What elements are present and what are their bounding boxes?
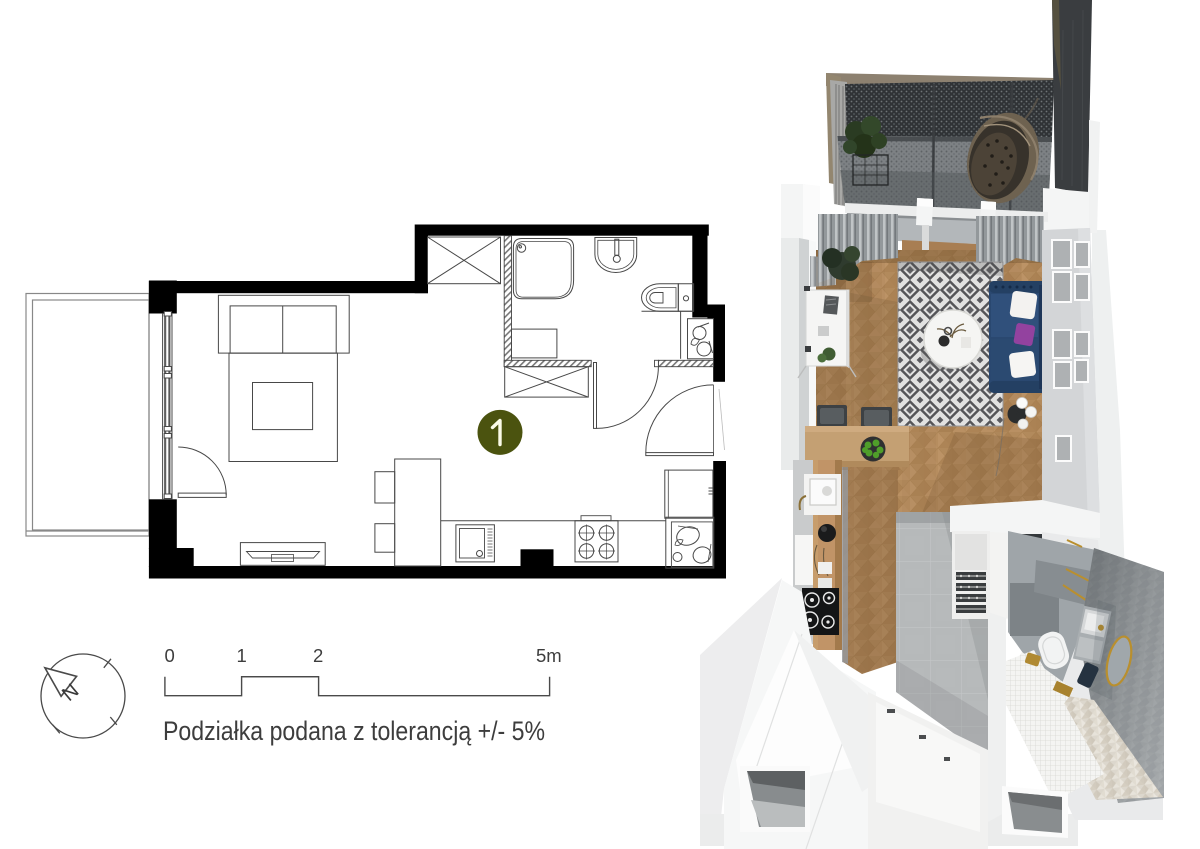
svg-text:0: 0 [165,645,175,666]
svg-text:1: 1 [237,645,247,666]
svg-text:2: 2 [313,645,323,666]
svg-text:5m: 5m [536,645,562,666]
svg-text:Podziałka podana z tolerancją: Podziałka podana z tolerancją +/- 5% [163,716,545,746]
